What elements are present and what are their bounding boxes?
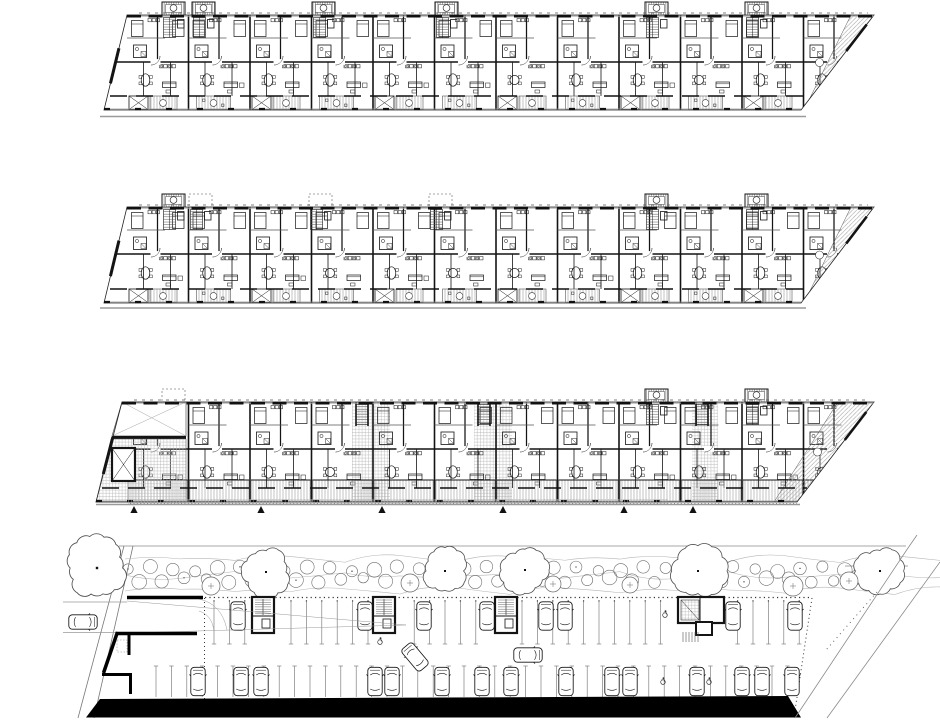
- parked-car: [502, 667, 519, 695]
- round-tree: [401, 574, 419, 592]
- shrub: [614, 564, 628, 578]
- shrub: [480, 560, 493, 573]
- parked-car: [252, 667, 269, 695]
- terrace: [682, 480, 742, 502]
- entrance-marker: [620, 506, 627, 513]
- large-tree: [241, 548, 289, 599]
- parked-car: [229, 602, 246, 630]
- shrub: [413, 563, 425, 575]
- drawing-canvas: Architectural drawing: three stacked apa…: [0, 0, 940, 720]
- round-tree: [545, 576, 561, 592]
- parked-car: [478, 602, 495, 630]
- shrub: [335, 573, 347, 585]
- moving-car: [399, 641, 430, 674]
- moving-car: [514, 646, 542, 663]
- round-tree: [840, 572, 858, 590]
- terrace: [374, 480, 434, 502]
- parked-car: [603, 667, 620, 695]
- shrub: [750, 564, 760, 574]
- shrub: [637, 561, 650, 574]
- balcony: [812, 289, 846, 303]
- shrub: [648, 576, 660, 588]
- stair-core: [373, 597, 395, 633]
- stair-tower: [429, 194, 452, 207]
- architectural-drawing: [0, 0, 940, 720]
- stair-core: [495, 597, 517, 633]
- terrace: [436, 480, 496, 502]
- terrace: [620, 480, 680, 502]
- round-tree: [783, 576, 803, 596]
- stairwell: [696, 402, 708, 426]
- parked-car: [557, 667, 574, 695]
- floor-interior: [96, 402, 874, 502]
- parked-car: [753, 667, 770, 695]
- shrub: [190, 566, 201, 577]
- large-tree: [423, 546, 466, 591]
- floor-plan-middle: [100, 194, 874, 308]
- shrub: [828, 576, 838, 586]
- shrub: [300, 560, 314, 574]
- parked-car: [733, 667, 750, 695]
- terrace: [497, 480, 557, 502]
- entrance-marker: [257, 506, 264, 513]
- retaining-wall-band: [86, 696, 801, 718]
- round-tree: [622, 577, 638, 593]
- entrance-marker: [130, 506, 137, 513]
- shrub: [155, 575, 168, 588]
- shrub: [210, 561, 225, 576]
- large-tree: [67, 534, 126, 597]
- shrub: [727, 561, 739, 573]
- parked-car: [724, 602, 741, 630]
- stair-core: [252, 597, 274, 633]
- entry-retaining-walls: [102, 598, 203, 695]
- parked-car: [366, 667, 383, 695]
- shrub: [132, 575, 147, 590]
- road-car: [69, 613, 97, 630]
- shrub: [593, 566, 603, 576]
- accessible-parking-icon: [663, 610, 668, 617]
- shrub: [805, 576, 817, 588]
- shrub: [143, 560, 157, 574]
- terrace: [251, 480, 311, 502]
- balcony: [812, 96, 846, 110]
- shrub: [222, 575, 236, 589]
- entrance-marker: [378, 506, 385, 513]
- shrub: [660, 562, 671, 573]
- stairwell: [478, 402, 490, 426]
- parked-car: [621, 667, 638, 695]
- terrace: [559, 480, 619, 502]
- parked-car: [783, 667, 800, 695]
- entrance-marker: [499, 506, 506, 513]
- stair-core: [678, 597, 724, 642]
- parked-car: [473, 667, 490, 695]
- parked-car: [383, 667, 400, 695]
- stairwell: [356, 402, 368, 426]
- landscape-band: [67, 534, 940, 599]
- large-tree: [854, 548, 905, 595]
- terrace: [313, 480, 373, 502]
- parked-car: [232, 667, 249, 695]
- shrub: [367, 562, 382, 577]
- parked-car: [786, 602, 803, 630]
- parked-car: [415, 602, 432, 630]
- parked-car: [433, 667, 450, 695]
- parked-car: [556, 602, 573, 630]
- shrub: [817, 561, 828, 572]
- shrub: [469, 575, 482, 588]
- shrub: [602, 570, 617, 585]
- terrace: [190, 480, 250, 502]
- entrance-marker: [689, 506, 696, 513]
- shrub: [582, 575, 593, 586]
- parked-car: [189, 667, 206, 695]
- shrub: [312, 576, 325, 589]
- terrace: [805, 480, 865, 502]
- accessible-parking-icon: [661, 677, 666, 684]
- stair-tower: [162, 389, 185, 402]
- floor-plan-ground: [96, 389, 874, 513]
- road-line: [908, 535, 917, 548]
- parked-car: [688, 667, 705, 695]
- shrub: [323, 561, 336, 574]
- floor-plan-upper: [100, 2, 874, 117]
- stair-tower: [189, 194, 212, 207]
- site-plan: [63, 534, 940, 718]
- shrub: [167, 563, 180, 576]
- accessible-parking-icon: [378, 637, 383, 644]
- shrub: [390, 560, 403, 573]
- parked-car: [537, 602, 554, 630]
- shrub: [379, 574, 393, 588]
- stair-tower: [309, 194, 332, 207]
- large-tree: [670, 543, 728, 596]
- round-tree: [202, 577, 220, 595]
- shrub: [358, 572, 368, 582]
